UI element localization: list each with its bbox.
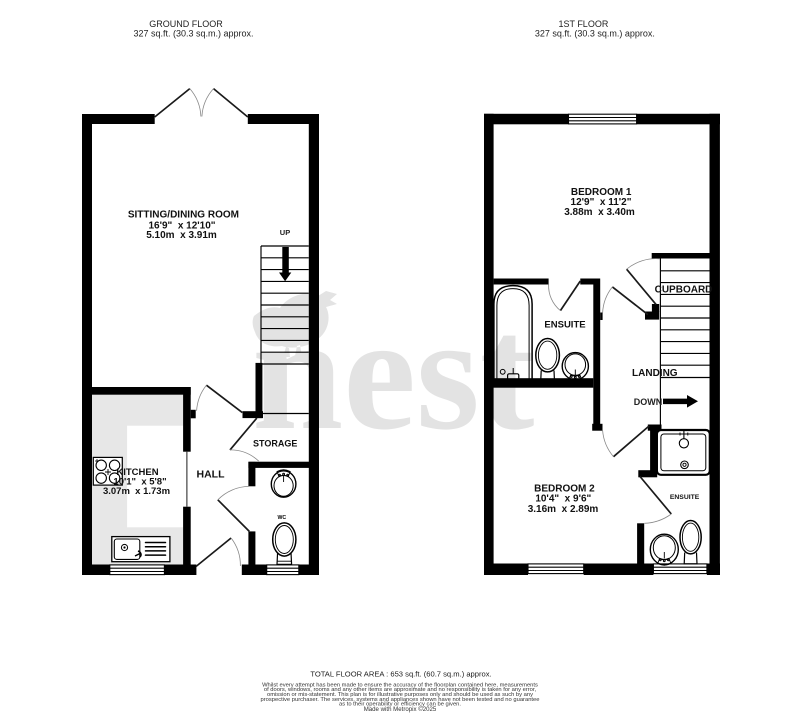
svg-text:HALL: HALL — [197, 469, 226, 481]
svg-text:327 sq.ft. (30.3 sq.m.) approx: 327 sq.ft. (30.3 sq.m.) approx. — [535, 29, 655, 39]
svg-text:LANDING: LANDING — [632, 368, 678, 379]
svg-text:5.10m x 3.91m: 5.10m x 3.91m — [146, 230, 217, 241]
svg-text:GROUND FLOOR: GROUND FLOOR — [149, 19, 223, 29]
svg-text:DOWN: DOWN — [634, 397, 663, 407]
svg-text:CUPBOARD: CUPBOARD — [655, 284, 713, 295]
svg-text:WC: WC — [277, 515, 286, 521]
svg-text:10'4" x 9'6": 10'4" x 9'6" — [535, 494, 591, 505]
svg-text:327 sq.ft. (30.3 sq.m.) approx: 327 sq.ft. (30.3 sq.m.) approx. — [133, 29, 253, 39]
svg-text:ENSUITE: ENSUITE — [544, 320, 585, 331]
svg-text:SITTING/DINING ROOM: SITTING/DINING ROOM — [128, 209, 239, 220]
svg-text:ENSUITE: ENSUITE — [670, 494, 700, 501]
svg-text:Made with Metropix ©2025: Made with Metropix ©2025 — [364, 706, 437, 713]
svg-text:3.16m x 2.89m: 3.16m x 2.89m — [528, 504, 599, 515]
svg-text:TOTAL FLOOR AREA : 653 sq.ft.: TOTAL FLOOR AREA : 653 sq.ft. (60.7 sq.m… — [310, 670, 491, 679]
svg-text:1ST FLOOR: 1ST FLOOR — [558, 19, 608, 29]
svg-text:UP: UP — [280, 228, 290, 237]
svg-text:3.07m x 1.73m: 3.07m x 1.73m — [103, 486, 170, 497]
svg-text:3.88m x 3.40m: 3.88m x 3.40m — [564, 207, 635, 218]
svg-text:STORAGE: STORAGE — [253, 439, 297, 449]
